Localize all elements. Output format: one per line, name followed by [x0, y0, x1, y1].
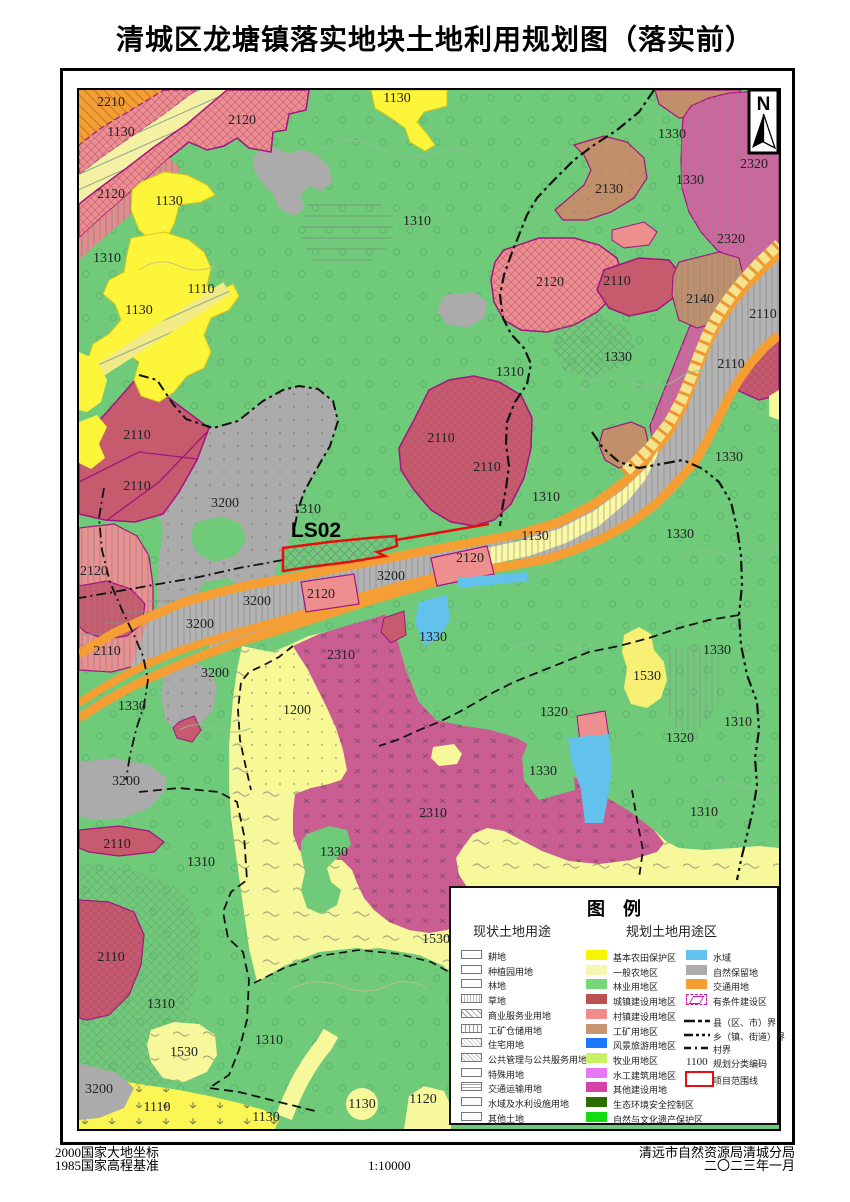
svg-text:1310: 1310: [147, 997, 175, 1012]
svg-text:1310: 1310: [187, 855, 215, 870]
svg-text:3200: 3200: [186, 617, 214, 632]
svg-text:1130: 1130: [383, 91, 410, 106]
svg-text:2120: 2120: [97, 187, 125, 202]
svg-text:N: N: [757, 94, 771, 115]
svg-text:1330: 1330: [658, 127, 686, 142]
svg-text:1320: 1320: [666, 731, 694, 746]
svg-text:1330: 1330: [604, 350, 632, 365]
svg-text:2120: 2120: [307, 587, 335, 602]
svg-text:1320: 1320: [540, 705, 568, 720]
svg-text:2120: 2120: [228, 113, 256, 128]
svg-text:1330: 1330: [703, 643, 731, 658]
svg-text:1330: 1330: [419, 630, 447, 645]
svg-text:1130: 1130: [107, 125, 134, 140]
svg-text:2110: 2110: [473, 460, 500, 475]
svg-text:1310: 1310: [532, 490, 560, 505]
svg-text:1330: 1330: [320, 845, 348, 860]
svg-text:1130: 1130: [125, 303, 152, 318]
svg-text:3200: 3200: [112, 774, 140, 789]
svg-text:1120: 1120: [409, 1092, 436, 1107]
svg-text:2210: 2210: [97, 95, 125, 110]
svg-text:1330: 1330: [715, 450, 743, 465]
svg-text:3200: 3200: [211, 496, 239, 511]
svg-text:1310: 1310: [690, 805, 718, 820]
svg-text:1130: 1130: [521, 529, 548, 544]
svg-text:1310: 1310: [93, 251, 121, 266]
svg-text:2110: 2110: [749, 307, 776, 322]
svg-text:2130: 2130: [595, 182, 623, 197]
svg-text:1310: 1310: [403, 214, 431, 229]
svg-text:1110: 1110: [188, 282, 215, 297]
svg-text:2140: 2140: [686, 292, 714, 307]
svg-text:1200: 1200: [283, 703, 311, 718]
svg-text:1130: 1130: [348, 1097, 375, 1112]
svg-text:1310: 1310: [255, 1033, 283, 1048]
svg-text:1130: 1130: [155, 194, 182, 209]
svg-text:2320: 2320: [717, 232, 745, 247]
svg-text:LS02: LS02: [291, 519, 341, 542]
svg-text:2320: 2320: [740, 157, 768, 172]
svg-text:1310: 1310: [724, 715, 752, 730]
svg-text:3200: 3200: [377, 569, 405, 584]
svg-text:1530: 1530: [170, 1045, 198, 1060]
svg-text:2110: 2110: [93, 644, 120, 659]
svg-text:1110: 1110: [144, 1100, 171, 1115]
svg-text:1330: 1330: [666, 527, 694, 542]
svg-text:2110: 2110: [97, 950, 124, 965]
svg-text:2110: 2110: [103, 837, 130, 852]
svg-text:2110: 2110: [603, 274, 630, 289]
svg-text:2120: 2120: [456, 551, 484, 566]
svg-text:3200: 3200: [201, 666, 229, 681]
svg-text:1130: 1130: [252, 1110, 279, 1125]
svg-text:2310: 2310: [327, 648, 355, 663]
svg-text:1330: 1330: [118, 699, 146, 714]
svg-text:1530: 1530: [422, 932, 450, 947]
svg-text:2110: 2110: [123, 428, 150, 443]
svg-text:2120: 2120: [536, 275, 564, 290]
svg-text:2110: 2110: [123, 479, 150, 494]
svg-text:2110: 2110: [427, 431, 454, 446]
svg-text:2310: 2310: [419, 806, 447, 821]
svg-text:1330: 1330: [676, 173, 704, 188]
svg-text:1330: 1330: [529, 764, 557, 779]
svg-text:2120: 2120: [80, 564, 108, 579]
svg-text:3200: 3200: [243, 594, 271, 609]
svg-text:1310: 1310: [293, 502, 321, 517]
svg-text:3200: 3200: [85, 1082, 113, 1097]
svg-text:2110: 2110: [717, 357, 744, 372]
svg-text:1310: 1310: [496, 365, 524, 380]
svg-text:1530: 1530: [633, 669, 661, 684]
